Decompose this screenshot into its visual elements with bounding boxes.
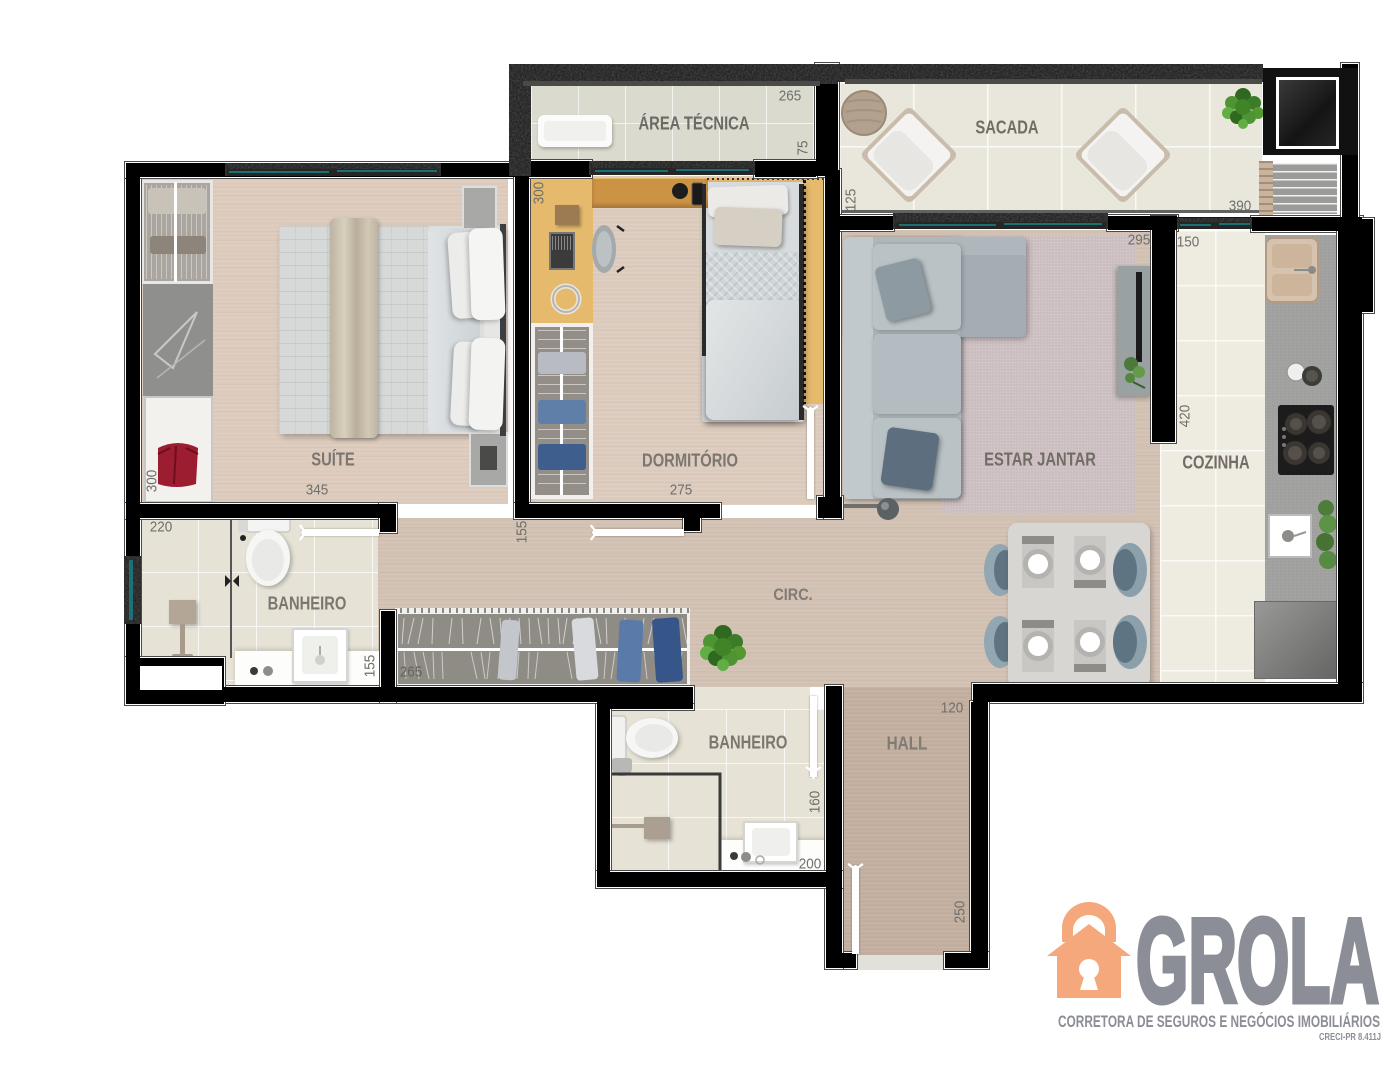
svg-text:CORRETORA DE SEGUROS E NEGÓCIO: CORRETORA DE SEGUROS E NEGÓCIOS IMOBILIÁ… (1058, 1012, 1380, 1031)
svg-text:CRECI-PR 8.411J: CRECI-PR 8.411J (1319, 1032, 1381, 1043)
svg-text:GROLA: GROLA (1136, 894, 1379, 1028)
